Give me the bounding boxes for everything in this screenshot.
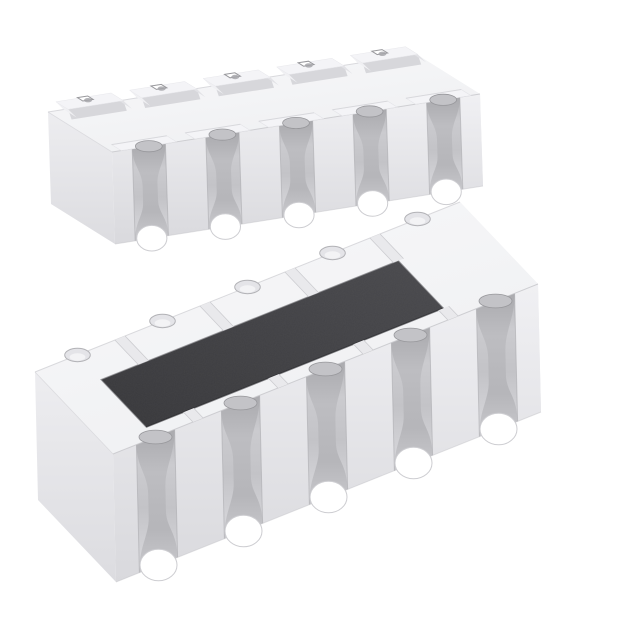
array-top-view-castellation-2	[221, 395, 262, 546]
array-top-view-near-edge-notch-5	[479, 294, 512, 308]
array-bottom-view-near-edge-notch-4	[356, 106, 383, 117]
array-bottom-view-castellation-2	[206, 132, 242, 239]
array-top-view-near-edge-notch-2	[224, 396, 257, 410]
array-top-view-near-edge-notch-3	[309, 362, 342, 376]
resistor-array-scene	[0, 0, 640, 640]
array-bottom-view-castellation-3	[279, 120, 315, 227]
array-bottom-view-castellation-1	[132, 144, 168, 251]
array-bottom-view-near-edge-notch-1	[135, 141, 162, 152]
array-bottom-view-near-edge-notch-2	[209, 129, 236, 140]
array-top-view-castellation-1	[136, 429, 177, 580]
array-bottom-view-castellation-4	[353, 109, 389, 216]
array-top-view-near-edge-notch-1	[139, 430, 172, 444]
array-top-view-castellation-4	[391, 327, 432, 478]
array-bottom-view-near-edge-notch-5	[430, 94, 457, 105]
array-top-view-castellation-5	[476, 293, 517, 444]
array-bottom-view-near-edge-notch-3	[283, 117, 310, 128]
array-bottom-view-castellation-5	[427, 97, 463, 204]
array-top-view-near-edge-notch-4	[394, 328, 427, 342]
product-photo	[0, 0, 640, 640]
array-top-view-castellation-3	[306, 361, 347, 512]
